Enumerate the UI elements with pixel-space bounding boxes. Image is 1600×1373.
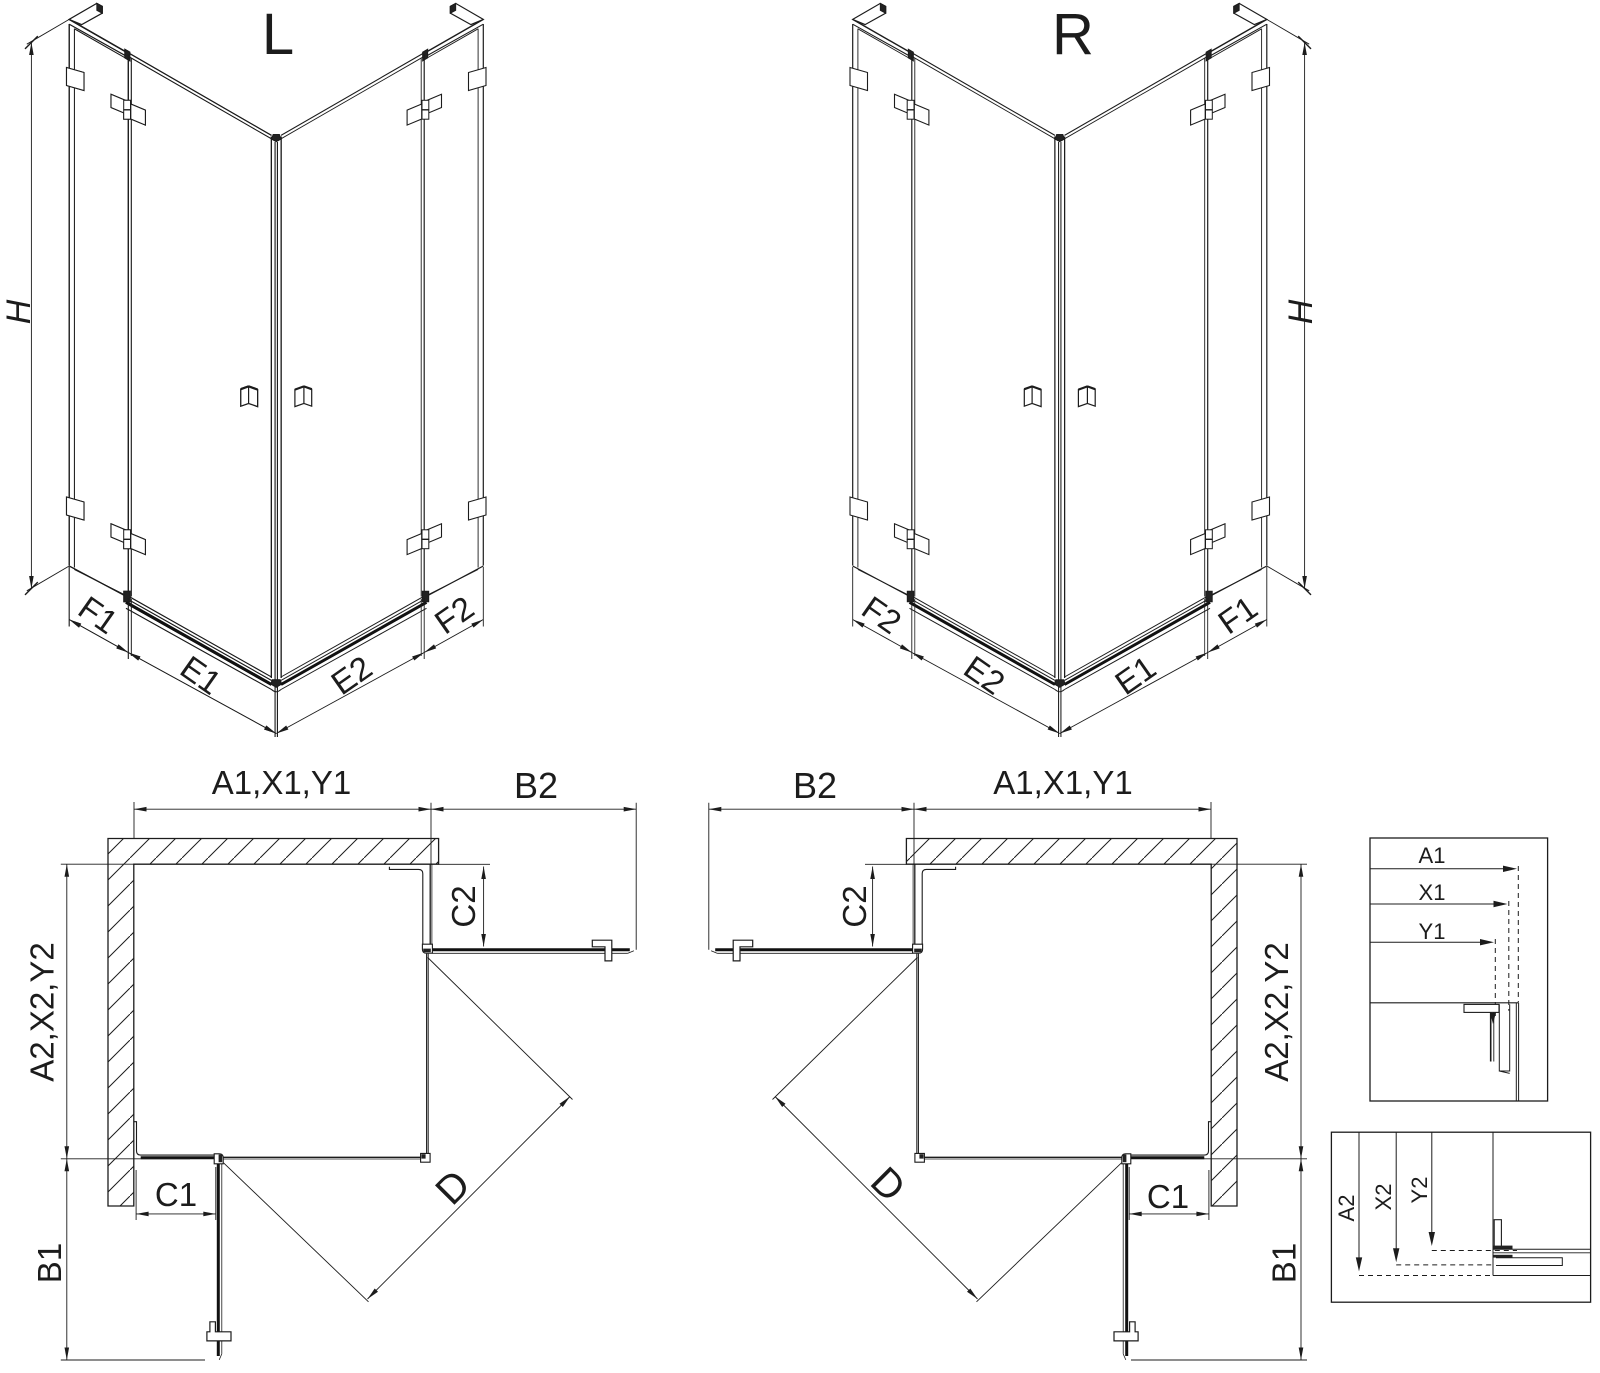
svg-text:C1: C1 bbox=[1147, 1178, 1189, 1215]
svg-text:C2: C2 bbox=[445, 885, 482, 927]
svg-text:B1: B1 bbox=[31, 1243, 68, 1283]
svg-text:B2: B2 bbox=[514, 765, 558, 806]
svg-text:R: R bbox=[1052, 2, 1094, 67]
svg-text:Y1: Y1 bbox=[1419, 919, 1446, 944]
svg-text:A2: A2 bbox=[1334, 1195, 1359, 1222]
svg-text:A2,X2,Y2: A2,X2,Y2 bbox=[24, 942, 61, 1081]
svg-text:Y2: Y2 bbox=[1407, 1177, 1432, 1204]
svg-text:H: H bbox=[1282, 299, 1320, 324]
svg-text:X1: X1 bbox=[1419, 880, 1446, 905]
svg-text:A2,X2,Y2: A2,X2,Y2 bbox=[1258, 942, 1295, 1081]
svg-text:L: L bbox=[262, 2, 294, 67]
svg-text:A1,X1,Y1: A1,X1,Y1 bbox=[212, 764, 351, 801]
svg-text:C1: C1 bbox=[155, 1176, 197, 1213]
svg-text:H: H bbox=[0, 299, 38, 324]
svg-text:A1,X1,Y1: A1,X1,Y1 bbox=[993, 764, 1132, 801]
svg-text:A1: A1 bbox=[1419, 843, 1446, 868]
svg-text:B2: B2 bbox=[793, 765, 837, 806]
svg-text:B1: B1 bbox=[1266, 1243, 1303, 1283]
svg-text:X2: X2 bbox=[1371, 1184, 1396, 1211]
svg-text:C2: C2 bbox=[836, 885, 873, 927]
